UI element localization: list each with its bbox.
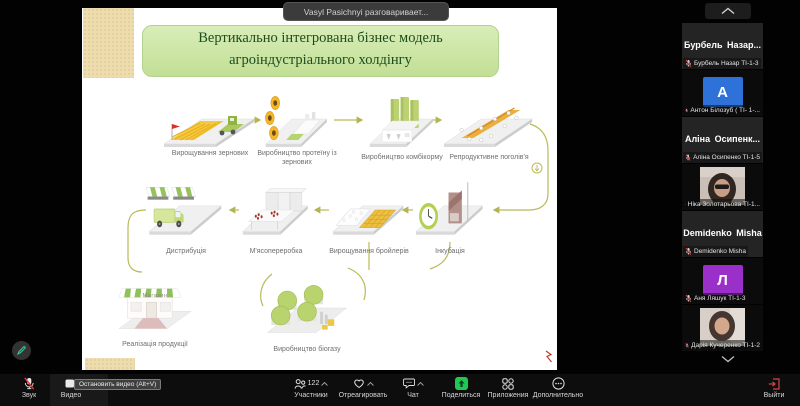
participant-label: Аліна Осипенко ТІ-1-5: [693, 154, 760, 161]
chat-label: Чат: [396, 392, 430, 399]
pencil-icon: [16, 345, 27, 356]
chevron-up-icon[interactable]: [417, 382, 424, 386]
station-label: М'ясопереробка: [240, 248, 312, 257]
retail-store-icon: [112, 273, 198, 339]
distribution-truck-icon: [146, 178, 226, 242]
avatar: A: [703, 77, 743, 107]
speaking-notification-text: Vasyl Pasichnyi разговаривает...: [304, 7, 428, 17]
zoom-meeting-window: Вертикально інтегрована бізнес модель аг…: [0, 0, 800, 406]
scroll-down-button[interactable]: [705, 352, 751, 366]
speaking-notification: Vasyl Pasichnyi разговаривает...: [283, 2, 449, 21]
participant-display-name: Demidenko Misha: [683, 228, 762, 238]
station-label: Вирощування бройлерів: [322, 248, 416, 257]
participant-name-chip: Аліна Осипенко ТІ-1-5: [683, 152, 762, 163]
participant-label: Дарія Кучеренко ТІ-1-2: [691, 342, 760, 349]
biogas-plant-icon: [260, 276, 354, 340]
grain-field-icon: [160, 92, 260, 154]
participant-name-chip: Ніка Золотарьова ТІ-1...: [683, 199, 762, 210]
participant-tile[interactable]: Ніка Золотарьова ТІ-1...: [682, 164, 763, 210]
circled-arrow-icon: [532, 163, 542, 173]
meeting-toolbar: Звук Видео Остановить видео (Alt+V): [0, 374, 800, 406]
station-breeder-flock: Репродуктивне поголів'я: [440, 92, 538, 154]
avatar: Л: [703, 265, 743, 295]
share-screen-icon: [455, 377, 468, 390]
participant-display-name: Аліна Осипенк...: [683, 134, 762, 144]
muted-mic-icon: [685, 294, 692, 303]
station-distribution: Дистрибуція: [146, 178, 226, 242]
chevron-up-icon: [721, 7, 735, 15]
participant-name-chip: Антон Білозуб ( ТІ- 1-...: [683, 105, 762, 116]
station-label: Інкубація: [413, 248, 487, 257]
participant-label: Demidenko Misha: [694, 248, 746, 255]
leave-label: Выйти: [754, 392, 794, 399]
participant-name-chip: Аня Ляшук ТІ-1-3: [683, 293, 748, 304]
participant-tile[interactable]: Бурбель Назар... Бурбель Назар ТІ-1-3: [682, 23, 763, 69]
share-screen-button[interactable]: Поделиться: [438, 376, 484, 399]
station-label: Виробництво біогазу: [260, 346, 354, 355]
red-pointer-mark: [543, 350, 553, 364]
participants-button[interactable]: 122 Участники: [286, 376, 336, 399]
participants-count: 122: [308, 380, 320, 387]
muted-mic-icon: [685, 59, 692, 68]
participants-icon: [294, 378, 306, 390]
apps-label: Приложения: [486, 392, 530, 399]
station-incubation: Інкубація: [413, 178, 487, 242]
station-broiler-growing: Вирощування бройлерів: [330, 178, 408, 242]
ellipsis-icon: [552, 377, 565, 390]
participant-label: Антон Білозуб ( ТІ- 1-...: [690, 107, 760, 114]
sunflower-protein-icon: [263, 92, 331, 154]
chevron-up-icon[interactable]: [367, 382, 374, 386]
react-button[interactable]: Отреагировать: [336, 376, 390, 399]
mute-label: Звук: [12, 392, 46, 399]
heart-icon: [353, 378, 365, 389]
muted-mic-icon: [685, 247, 692, 256]
muted-mic-icon: [685, 341, 689, 350]
scroll-up-button[interactable]: [705, 3, 751, 19]
station-label: Репродуктивне поголів'я: [440, 154, 538, 163]
station-retail-store: Магазин Реалізація продукції: [112, 273, 198, 339]
stop-video-tooltip: Остановить видео (Alt+V): [74, 379, 161, 390]
chat-button[interactable]: Чат: [396, 376, 430, 399]
more-label: Дополнительно: [532, 392, 584, 399]
muted-mic-icon: [685, 200, 686, 209]
station-label: Виробництво протеїну із зернових: [255, 150, 339, 168]
station-label: Вирощування зернових: [155, 150, 265, 159]
leave-button[interactable]: Выйти: [754, 376, 794, 399]
participant-name-chip: Бурбель Назар ТІ-1-3: [683, 58, 761, 69]
leave-door-icon: [768, 378, 781, 390]
meat-processing-icon: [240, 178, 312, 242]
annotate-button[interactable]: [12, 341, 31, 360]
participant-tile[interactable]: Дарія Кучеренко ТІ-1-2: [682, 305, 763, 351]
mute-button[interactable]: Звук: [12, 376, 46, 399]
participant-tile[interactable]: Л Аня Ляшук ТІ-1-3: [682, 258, 763, 304]
shared-screen-slide: Вертикально інтегрована бізнес модель аг…: [82, 8, 557, 370]
station-label: Дистрибуція: [136, 248, 236, 257]
participant-label: Ніка Золотарьова ТІ-1...: [688, 201, 760, 208]
station-meat-processing: М'ясопереробка: [240, 178, 312, 242]
participant-tile[interactable]: A Антон Білозуб ( ТІ- 1-...: [682, 70, 763, 116]
muted-mic-icon: [23, 377, 35, 390]
apps-button[interactable]: Приложения: [486, 376, 530, 399]
participants-label: Участники: [286, 392, 336, 399]
station-label: Виробництво комбікорму: [354, 154, 450, 163]
feed-mill-icon: [367, 92, 437, 154]
station-label: Реалізація продукції: [102, 341, 208, 350]
participant-tile[interactable]: Demidenko Misha Demidenko Misha: [682, 211, 763, 257]
station-grain-growing: Вирощування зернових: [160, 92, 260, 154]
breeder-flock-icon: [440, 92, 538, 154]
participant-name-chip: Дарія Кучеренко ТІ-1-2: [683, 340, 762, 351]
participant-name-chip: Demidenko Misha: [683, 246, 748, 257]
react-label: Отреагировать: [336, 392, 390, 399]
incubation-clock-icon: [413, 178, 487, 242]
muted-mic-icon: [685, 106, 688, 115]
apps-icon: [502, 378, 514, 390]
store-sign-label: Магазин: [112, 293, 198, 299]
chevron-down-icon: [721, 355, 735, 363]
participant-label: Бурбель Назар ТІ-1-3: [694, 60, 759, 67]
chevron-up-icon[interactable]: [321, 382, 328, 386]
share-label: Поделиться: [438, 392, 484, 399]
muted-mic-icon: [685, 153, 691, 162]
more-button[interactable]: Дополнительно: [532, 376, 584, 399]
station-feed-mill: Виробництво комбікорму: [367, 92, 437, 154]
video-label: Видео: [54, 392, 88, 399]
station-biogas: Виробництво біогазу: [260, 276, 354, 340]
station-protein-production: Виробництво протеїну із зернових: [263, 92, 331, 154]
chat-bubble-icon: [403, 378, 415, 389]
participant-tile[interactable]: Аліна Осипенк... Аліна Осипенко ТІ-1-5: [682, 117, 763, 163]
broiler-house-icon: [330, 178, 408, 242]
participant-label: Аня Ляшук ТІ-1-3: [694, 295, 746, 302]
participant-display-name: Бурбель Назар...: [683, 40, 762, 50]
